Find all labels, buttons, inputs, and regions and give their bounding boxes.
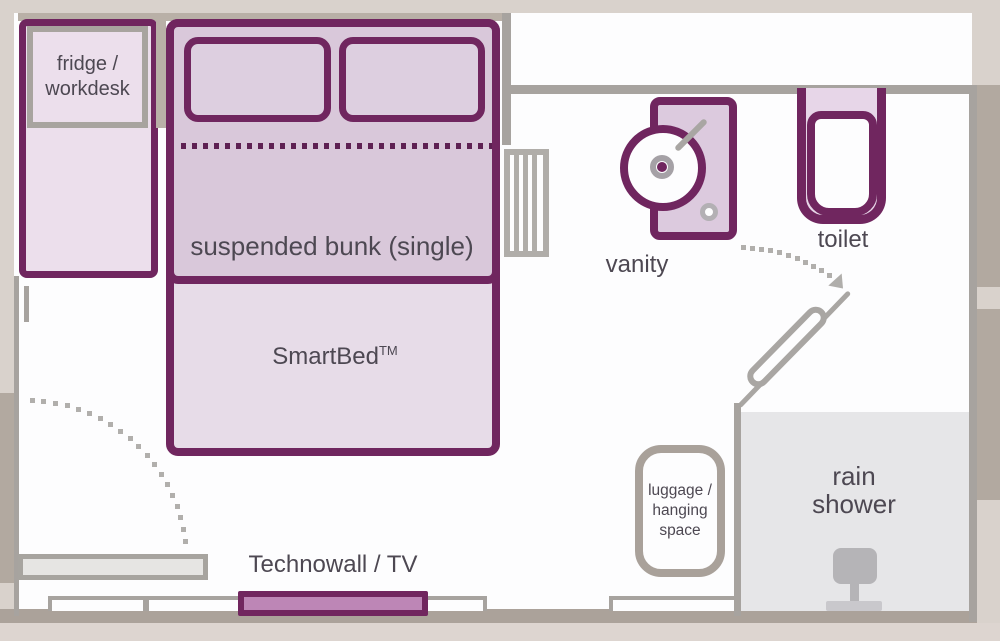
- vanity-label: vanity: [587, 251, 687, 279]
- door-swing-dot: [76, 407, 81, 412]
- wall-right: [969, 85, 977, 622]
- fridge-workdesk-label-line1: fridge /: [57, 52, 118, 77]
- wall-outer-left: [0, 393, 14, 583]
- rain-shower-label: rain shower: [764, 462, 944, 518]
- floor-plan: fridge / workdesk suspended bunk (single…: [0, 0, 1000, 641]
- wall-bathroom-top: [502, 85, 977, 94]
- door-swing-dot: [827, 273, 832, 278]
- ladder-rung: [514, 155, 519, 251]
- door-swing-dot: [118, 429, 123, 434]
- door-swing-dot: [181, 527, 186, 532]
- suspended-bunk-label: suspended bunk (single): [167, 231, 497, 262]
- door-swing-dot: [136, 444, 141, 449]
- door-swing-dot: [741, 245, 746, 250]
- ladder-rung: [523, 155, 528, 251]
- luggage-label-line3: space: [659, 521, 700, 541]
- fridge-workdesk-label-line2: workdesk: [45, 77, 129, 102]
- smartbed-trademark: TM: [379, 343, 398, 358]
- wall-sliver: [156, 13, 166, 128]
- door-swing-dot: [98, 416, 103, 421]
- door-swing-dot: [108, 422, 113, 427]
- toilet-label: toilet: [793, 226, 893, 254]
- door-swing-dot: [819, 268, 824, 273]
- wall-shower-left: [734, 403, 741, 616]
- door-swing-dot: [786, 253, 791, 258]
- luggage-label-line1: luggage /: [648, 481, 712, 501]
- door-swing-dot: [41, 399, 46, 404]
- door-swing-dot: [183, 539, 188, 544]
- technowall-label: Technowall / TV: [203, 551, 463, 579]
- workdesk-surface: fridge / workdesk: [27, 26, 148, 128]
- door-swing-dot: [159, 472, 164, 477]
- shower-head-icon: [833, 548, 877, 584]
- door-swing-dot: [145, 453, 150, 458]
- ladder-rung: [532, 155, 537, 251]
- pillow-right: [339, 37, 485, 122]
- door-swing-dot: [128, 436, 133, 441]
- smartbed-label: SmartBedTM: [170, 343, 500, 371]
- bunk-dotted-line: [181, 143, 492, 149]
- door-swing-dot: [768, 248, 773, 253]
- door-swing-dot: [178, 515, 183, 520]
- shower-stem-icon: [850, 583, 859, 603]
- wall-outer-right-notch: [977, 287, 1000, 309]
- door-swing-dot: [170, 493, 175, 498]
- door-swing-dot: [795, 256, 800, 261]
- wall-left-stub: [24, 286, 29, 322]
- wall-niche-right: [609, 596, 738, 611]
- vanity-sink-dot: [657, 162, 667, 172]
- entry-door-leaf: [18, 554, 208, 580]
- door-swing-dot: [777, 250, 782, 255]
- pillow-left: [184, 37, 331, 122]
- toilet-seat: [807, 111, 877, 216]
- door-swing-dot: [30, 398, 35, 403]
- door-swing-dot: [803, 260, 808, 265]
- door-swing-dot: [65, 403, 70, 408]
- door-swing-dot: [811, 264, 816, 269]
- door-swing-dot: [759, 247, 764, 252]
- shower-base-icon: [826, 601, 882, 611]
- background-bottom-band: [0, 623, 1000, 641]
- smartbed-label-text: SmartBed: [272, 343, 379, 370]
- luggage-unit: luggage / hanging space: [635, 445, 725, 577]
- door-swing-dot: [152, 462, 157, 467]
- tv-unit: [238, 591, 428, 616]
- rain-shower-label-line2: shower: [764, 490, 944, 518]
- wall-corridor-left: [502, 13, 511, 145]
- wall-niche-divider: [143, 596, 149, 611]
- door-swing-dot: [750, 246, 755, 251]
- rain-shower-label-line1: rain: [764, 462, 944, 490]
- bunk-ladder: [504, 149, 549, 257]
- wall-bottom: [0, 609, 977, 623]
- door-swing-dot: [87, 411, 92, 416]
- door-swing-dot: [53, 401, 58, 406]
- luggage-label-line2: hanging: [652, 501, 707, 521]
- door-swing-dot: [165, 482, 170, 487]
- door-swing-dot: [175, 504, 180, 509]
- vanity-drain: [700, 203, 718, 221]
